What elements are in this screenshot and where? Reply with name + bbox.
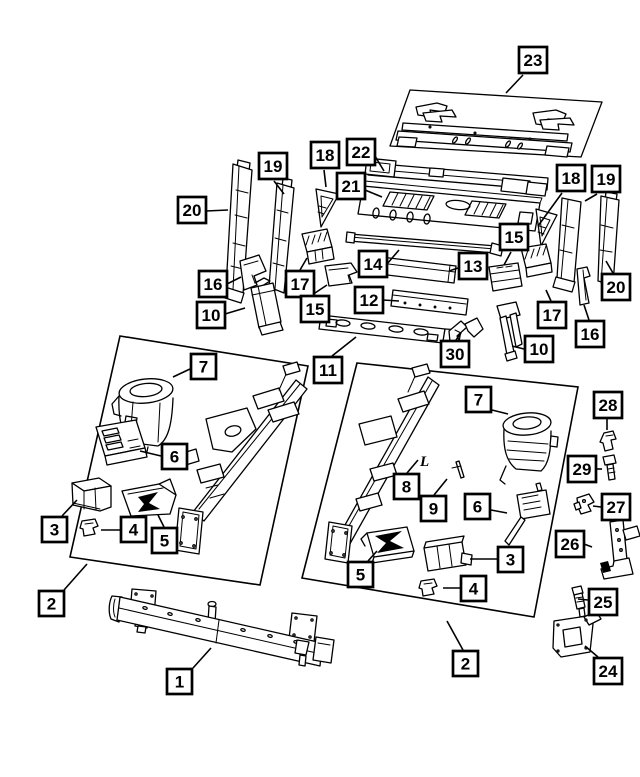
callout-number: 2 xyxy=(47,595,56,614)
callout-5: 5 xyxy=(348,562,373,587)
part-bolt-29 xyxy=(603,455,616,480)
callout-number: 2 xyxy=(461,655,470,674)
callout-number: 17 xyxy=(543,306,562,325)
callout-number: 30 xyxy=(446,345,465,364)
callout-number: 15 xyxy=(306,300,325,319)
callout-1: 1 xyxy=(167,669,192,694)
callout-number: 10 xyxy=(530,340,549,359)
callout-11: 11 xyxy=(314,357,342,383)
part-tray-bracket-3-left xyxy=(72,478,111,511)
callout-number: 26 xyxy=(561,535,580,554)
callout-8: 8 xyxy=(394,474,419,499)
part-clip-28 xyxy=(600,431,616,451)
callout-23: 23 xyxy=(519,47,547,73)
callout-15: 15 xyxy=(301,296,329,322)
part-lower-crossmember xyxy=(319,315,461,343)
callout-5: 5 xyxy=(152,528,177,553)
leader-line-2 xyxy=(447,621,463,650)
callout-number: 17 xyxy=(291,275,310,294)
leader-line-16 xyxy=(584,305,589,320)
callout-number: 18 xyxy=(316,146,335,165)
part-bracket-16-left xyxy=(240,255,266,290)
callout-number: 4 xyxy=(469,580,479,599)
leader-line-12 xyxy=(383,300,399,301)
part-fork-bracket-10-right xyxy=(497,302,522,361)
part-bracket-15-left xyxy=(325,263,357,286)
leader-line-17 xyxy=(546,290,551,301)
callout-17: 17 xyxy=(286,271,314,297)
part-ribbed-tray-6-right xyxy=(505,483,550,545)
callout-20: 20 xyxy=(602,274,630,300)
callout-21: 21 xyxy=(337,173,365,199)
callout-number: 7 xyxy=(199,358,208,377)
callout-28: 28 xyxy=(594,392,622,418)
part-gusset-18-left xyxy=(316,189,339,227)
callout-6: 6 xyxy=(162,444,187,469)
callout-27: 27 xyxy=(602,494,630,520)
leader-line-7 xyxy=(173,369,190,377)
callout-16: 16 xyxy=(199,271,227,297)
annotation-L: L xyxy=(419,454,429,470)
callout-number: 14 xyxy=(364,255,383,274)
part-clip-4-left xyxy=(80,519,98,536)
callout-number: 5 xyxy=(160,532,169,551)
part-ribbed-tray-6-left xyxy=(96,420,147,465)
callout-number: 24 xyxy=(599,662,618,681)
callout-number: 22 xyxy=(352,143,371,162)
callout-number: 29 xyxy=(573,460,592,479)
callout-number: 10 xyxy=(202,306,221,325)
part-clip-pair-30 xyxy=(449,318,483,342)
part-pillar-20-right xyxy=(598,192,619,285)
leader-line-1 xyxy=(193,648,211,668)
part-skid-bracket-5-right xyxy=(361,527,414,563)
callout-2: 2 xyxy=(453,651,478,676)
leader-line-20 xyxy=(206,210,228,211)
leader-line-15 xyxy=(504,252,511,265)
callout-22: 22 xyxy=(347,139,375,165)
part-fastener-near-9 xyxy=(452,461,464,478)
callout-18: 18 xyxy=(557,165,585,191)
callout-number: 3 xyxy=(506,551,515,570)
part-tray-bracket-3-right xyxy=(424,536,472,571)
callout-30: 30 xyxy=(441,341,469,367)
part-clip-4-right xyxy=(419,579,437,596)
callout-18: 18 xyxy=(311,142,339,168)
callout-19: 19 xyxy=(259,153,287,179)
callout-number: 15 xyxy=(505,228,524,247)
part-plate-bracket-24 xyxy=(553,609,603,657)
callout-number: 9 xyxy=(429,500,438,519)
leader-line-27 xyxy=(593,506,601,507)
part-strut-tower-7-right xyxy=(500,411,558,484)
callout-15: 15 xyxy=(500,224,528,250)
callout-4: 4 xyxy=(461,576,486,601)
leader-line-23 xyxy=(506,75,523,93)
diagram-canvas: 2318192221201819151413161720121510171610… xyxy=(0,0,640,777)
callout-number: 23 xyxy=(524,51,543,70)
callout-9: 9 xyxy=(421,496,446,521)
callout-number: 25 xyxy=(594,593,613,612)
leader-line-25 xyxy=(578,599,588,600)
part-skid-bracket-5-left xyxy=(122,479,176,516)
leader-line-6 xyxy=(491,510,507,513)
leader-line-17 xyxy=(300,258,307,270)
callout-14: 14 xyxy=(359,251,387,277)
callout-3: 3 xyxy=(42,517,67,542)
callout-number: 19 xyxy=(597,170,616,189)
callout-24: 24 xyxy=(594,658,622,684)
callout-10: 10 xyxy=(197,302,225,328)
leader-line-10 xyxy=(225,308,245,314)
leader-line-8 xyxy=(407,460,418,473)
callout-29: 29 xyxy=(568,456,596,482)
leader-line-7 xyxy=(492,410,508,414)
callout-20: 20 xyxy=(178,197,206,223)
callout-number: 5 xyxy=(356,566,365,585)
callout-12: 12 xyxy=(355,287,383,313)
callout-number: 12 xyxy=(360,291,379,310)
part-strip-16-right xyxy=(577,267,590,305)
leader-line-3 xyxy=(62,500,77,516)
callout-3: 3 xyxy=(498,547,523,572)
exploded-parts-diagram: 2318192221201819151413161720121510171610… xyxy=(0,0,640,777)
leader-line-11 xyxy=(332,337,356,356)
callout-26: 26 xyxy=(556,531,584,557)
callout-number: 27 xyxy=(607,498,626,517)
callout-7: 7 xyxy=(466,387,491,412)
callout-number: 8 xyxy=(402,478,411,497)
callout-number: 16 xyxy=(581,325,600,344)
callout-25: 25 xyxy=(589,589,617,615)
part-bracket-27 xyxy=(574,494,594,514)
leader-line-5 xyxy=(158,515,164,527)
callout-number: 11 xyxy=(319,361,337,380)
callout-number: 6 xyxy=(473,498,482,517)
callout-number: 1 xyxy=(175,673,184,692)
leader-line-18 xyxy=(324,170,326,187)
part-bolt-25 xyxy=(572,586,585,617)
leader-line-19 xyxy=(585,194,597,201)
callout-number: 4 xyxy=(129,521,139,540)
part-pillar-19-right xyxy=(553,198,581,292)
callout-13: 13 xyxy=(459,253,487,279)
right-assembly-outline xyxy=(302,363,578,617)
callout-number: 7 xyxy=(474,391,483,410)
callout-6: 6 xyxy=(465,494,490,519)
part-rear-floor-panel xyxy=(390,90,602,157)
callout-number: 16 xyxy=(204,275,223,294)
callout-number: 20 xyxy=(607,278,626,297)
callout-number: 28 xyxy=(599,396,618,415)
callout-number: 18 xyxy=(562,169,581,188)
part-bracket-15-right xyxy=(489,263,522,291)
part-support-bar-12 xyxy=(391,290,468,315)
callout-4: 4 xyxy=(121,517,146,542)
callout-19: 19 xyxy=(592,166,620,192)
callout-7: 7 xyxy=(191,354,216,379)
callout-17: 17 xyxy=(538,302,566,328)
leader-line-2 xyxy=(64,564,87,590)
callout-number: 6 xyxy=(170,448,179,467)
callout-number: 19 xyxy=(264,157,283,176)
callout-2: 2 xyxy=(39,591,64,616)
callout-number: 21 xyxy=(342,177,361,196)
callout-16: 16 xyxy=(576,321,604,347)
callout-number: 3 xyxy=(50,521,59,540)
leader-line-9 xyxy=(434,479,447,495)
callout-number: 20 xyxy=(183,201,202,220)
callout-number: 13 xyxy=(464,257,483,276)
text-annotations: L xyxy=(419,454,429,470)
callout-10: 10 xyxy=(525,336,553,362)
part-bumper-beam xyxy=(109,589,334,666)
